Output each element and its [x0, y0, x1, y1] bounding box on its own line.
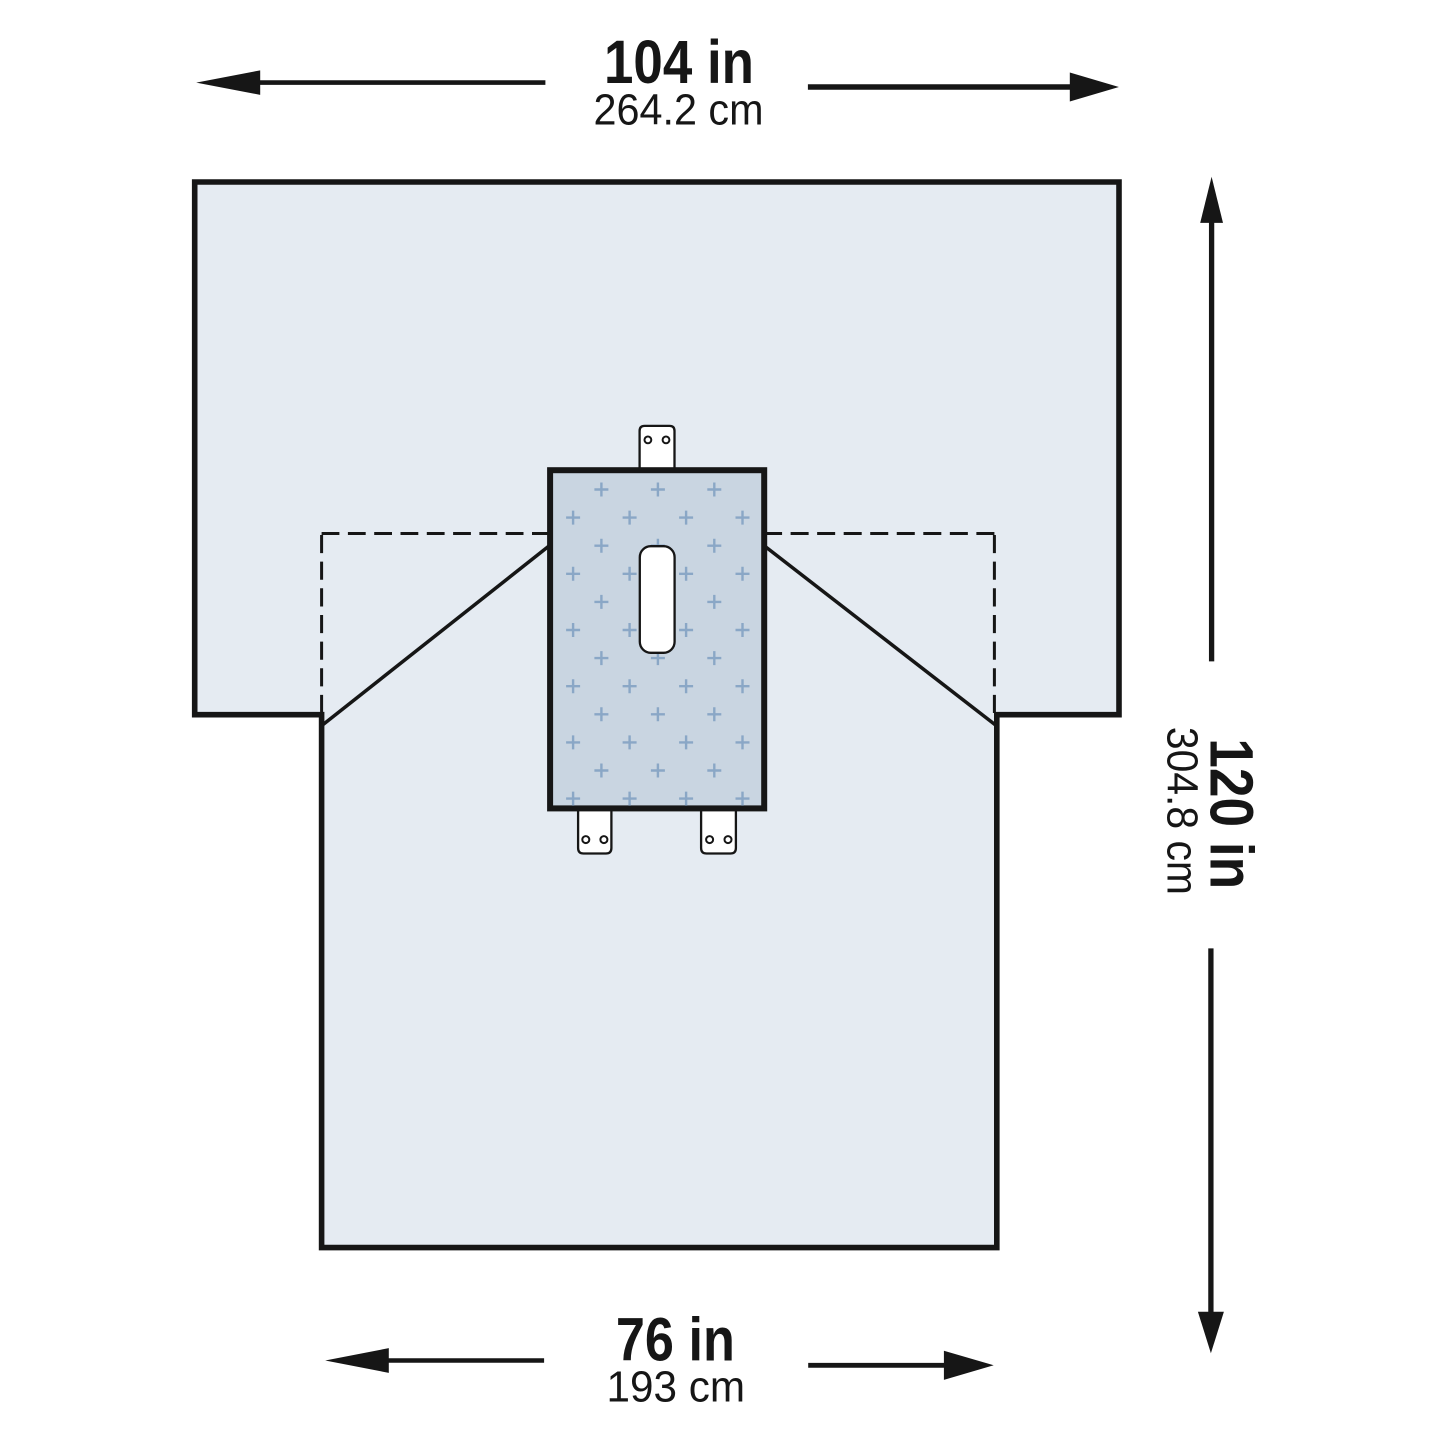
svg-text:264.2 cm: 264.2 cm: [594, 86, 764, 135]
svg-text:120 in: 120 in: [1198, 738, 1266, 889]
svg-text:304.8 cm: 304.8 cm: [1157, 727, 1206, 895]
svg-text:193 cm: 193 cm: [607, 1362, 746, 1411]
